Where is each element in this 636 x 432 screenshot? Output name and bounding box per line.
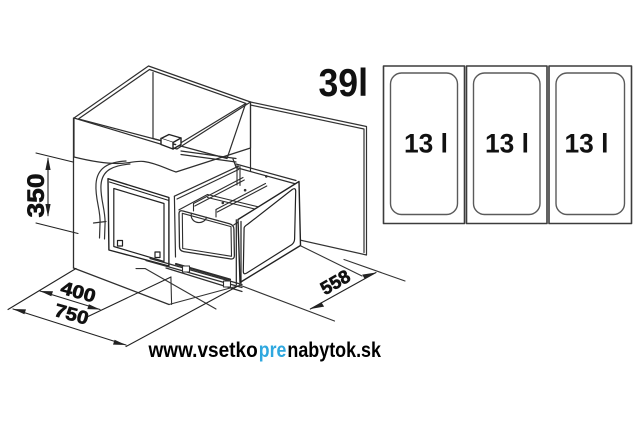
svg-text:558: 558	[317, 265, 354, 299]
svg-text:nabytok.sk: nabytok.sk	[287, 339, 381, 362]
svg-text:www.vsetko: www.vsetko	[148, 339, 258, 362]
svg-text:13 l: 13 l	[404, 129, 448, 159]
svg-text:13 l: 13 l	[565, 129, 609, 159]
svg-text:39l: 39l	[319, 62, 369, 105]
svg-text:pre: pre	[259, 339, 287, 362]
svg-text:13 l: 13 l	[485, 129, 529, 159]
svg-text:350: 350	[23, 174, 50, 218]
